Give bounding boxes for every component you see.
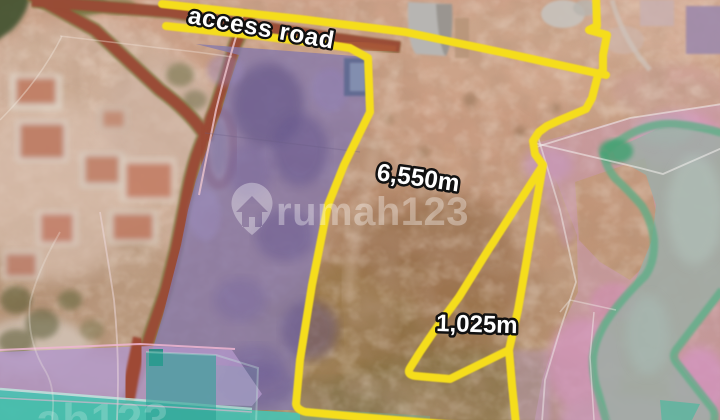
svg-text:1,025m: 1,025m (436, 310, 518, 339)
svg-text:rumah123: rumah123 (276, 190, 469, 234)
svg-text:ah123: ah123 (36, 394, 169, 420)
